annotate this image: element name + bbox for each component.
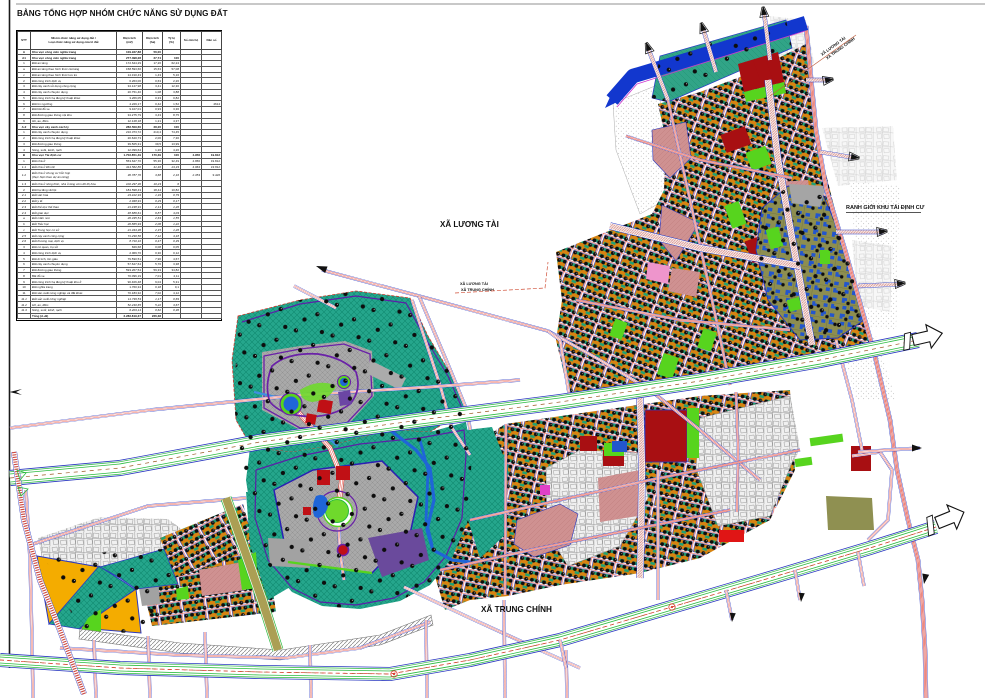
svg-text:XÃ LƯƠNG TÀI: XÃ LƯƠNG TÀI bbox=[440, 220, 499, 229]
svg-text:XÃ TRUNG CHÍNH: XÃ TRUNG CHÍNH bbox=[461, 287, 494, 292]
svg-text:XÃ LƯƠNG TÀI: XÃ LƯƠNG TÀI bbox=[460, 281, 488, 286]
svg-text:RANH GIỚI KHU TÁI ĐỊNH CƯ: RANH GIỚI KHU TÁI ĐỊNH CƯ bbox=[846, 203, 925, 211]
svg-text:XÃ TRUNG CHÍNH: XÃ TRUNG CHÍNH bbox=[481, 604, 552, 614]
